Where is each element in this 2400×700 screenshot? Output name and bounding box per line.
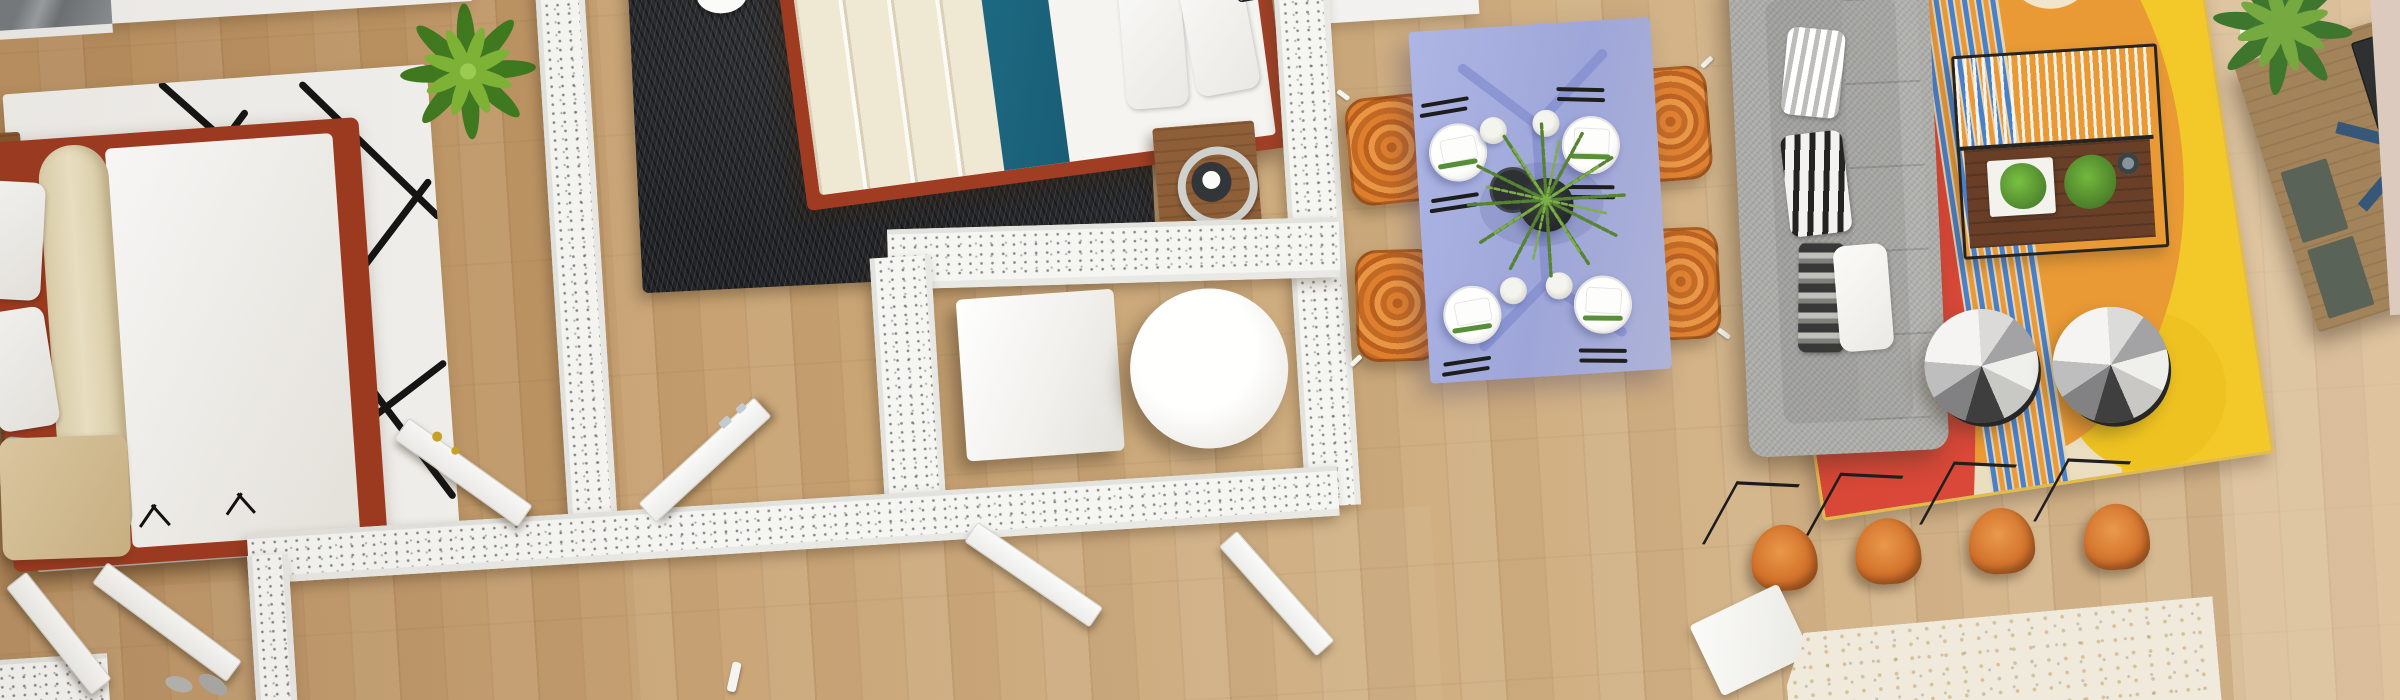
bed1-duvet: [105, 133, 360, 548]
bar-cart: [1951, 43, 2169, 260]
floorplan-scene: [0, 0, 2400, 700]
fork: [1579, 349, 1627, 353]
bed1-pillow-top: [0, 180, 46, 301]
garnish: [1583, 316, 1623, 321]
bed-1: [0, 117, 388, 572]
sofa: [1727, 0, 1949, 458]
media-plant: [2203, 0, 2362, 102]
apartment-floorplan-render: [0, 0, 2400, 700]
console-panel: [2280, 158, 2348, 243]
cart-slatted-shelf: [1954, 47, 2153, 151]
fork: [1579, 359, 1627, 363]
bed2-ribbed-blanket: [782, 0, 1004, 195]
closet-square-table: [956, 289, 1125, 462]
sofa-pillow-white: [1832, 243, 1894, 353]
bedroom1-plant: [394, 0, 543, 146]
bed1-tan-blanket: [0, 434, 131, 560]
sofa-pillow-striped-light: [1780, 26, 1846, 119]
wall-closet-top: [887, 217, 1340, 290]
sofa-pillow-zebra: [1780, 129, 1853, 237]
napkin: [1585, 287, 1622, 315]
console-panel: [2307, 236, 2375, 319]
bed2-pillow-left: [1116, 0, 1190, 110]
napkin: [1453, 297, 1493, 327]
fern-plant: [1455, 115, 1637, 283]
